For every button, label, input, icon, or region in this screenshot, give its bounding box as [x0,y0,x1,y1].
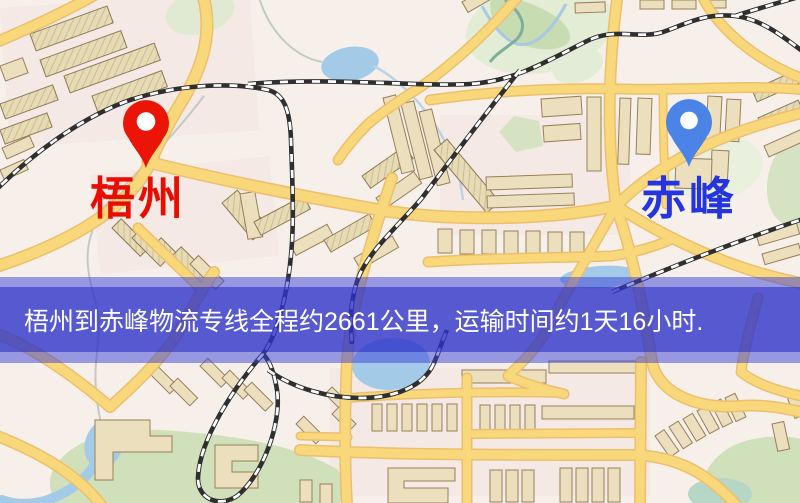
destination-label: 赤峰 [641,177,737,222]
map-canvas [0,0,800,503]
route-info-banner: 梧州到赤峰物流专线全程约2661公里，运输时间约1天16小时. [0,277,800,363]
origin-label: 梧州 [90,177,186,222]
origin-pin-icon [120,97,172,171]
destination-pin-icon [663,96,715,170]
route-info-band: 梧州到赤峰物流专线全程约2661公里，运输时间约1天16小时. [0,287,800,352]
route-info-text: 梧州到赤峰物流专线全程约2661公里，运输时间约1天16小时. [0,302,703,338]
map-screenshot: 梧州 赤峰 梧州到赤峰物流专线全程约2661公里，运输时间约1天16小时. [0,0,800,503]
